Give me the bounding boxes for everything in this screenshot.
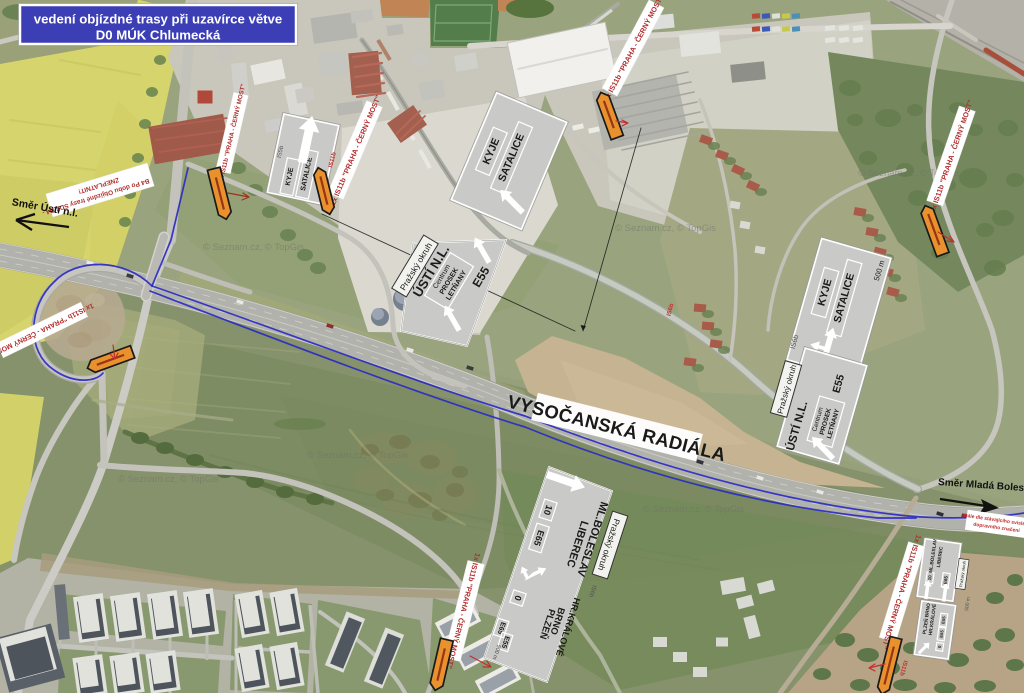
svg-text:D0 MÚK Chlumecká: D0 MÚK Chlumecká [96,28,221,43]
svg-text:© Seznam.cz, © TopGis: © Seznam.cz, © TopGis [118,474,219,485]
svg-text:© Seznam.cz, © TopGis: © Seznam.cz, © TopGis [307,450,408,461]
svg-text:© Seznam.cz, © TopGis: © Seznam.cz, © TopGis [643,504,744,515]
svg-text:© Seznam.cz, © TopGis: © Seznam.cz, © TopGis [203,242,304,253]
svg-text:vedení objízdné trasy při uzav: vedení objízdné trasy při uzavírce větve [34,12,282,27]
svg-text:© Seznam.cz, © TopGis: © Seznam.cz, © TopGis [615,223,716,234]
